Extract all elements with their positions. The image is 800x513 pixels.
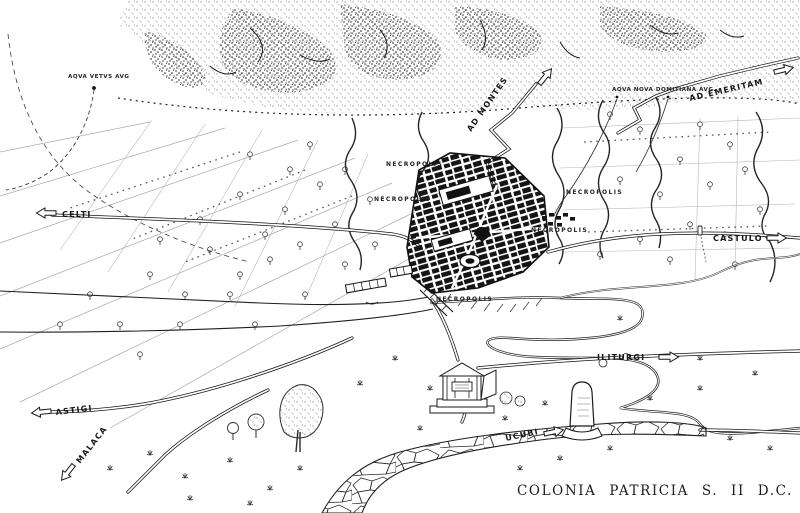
label-necropolis-south: NECROPOLIS (436, 296, 493, 303)
label-necropolis-east: NECROPOLIS (531, 227, 588, 234)
river-and-streams (0, 96, 800, 434)
riverside-warehouses (344, 265, 414, 293)
astigi-arrow-icon (31, 406, 51, 418)
map-caption: COLONIA PATRICIA S. II D.C. (517, 483, 793, 499)
aqua-vetus-source-dot (92, 86, 96, 90)
label-iliturgi: ILITURGI (597, 353, 645, 362)
label-malaca: MALACA (74, 424, 109, 465)
label-castulo: CASTULO (713, 234, 763, 243)
label-necropolis-northeast: NECROPOLIS (566, 189, 623, 196)
mausoleum (430, 363, 496, 413)
map-page: AQVA VETVS AVG AD MONTES AQVA NOVA DOMIT… (0, 0, 800, 513)
label-astigi: ASTIGI (55, 404, 93, 417)
malaca-arrow-icon (58, 462, 78, 484)
milestone-small (698, 226, 706, 262)
colonia-patricia-map: AQVA VETVS AVG AD MONTES AQVA NOVA DOMIT… (0, 0, 800, 513)
label-necropolis-west: NECROPOLIS (374, 196, 431, 203)
large-tree (280, 385, 323, 452)
label-celti: CELTI (62, 210, 92, 219)
river-baetis (0, 291, 433, 332)
label-necropolis-northwest: NECROPOLIS (386, 161, 443, 168)
city-wall (407, 153, 549, 293)
label-aqua-vetus: AQVA VETVS AVG (68, 74, 129, 80)
